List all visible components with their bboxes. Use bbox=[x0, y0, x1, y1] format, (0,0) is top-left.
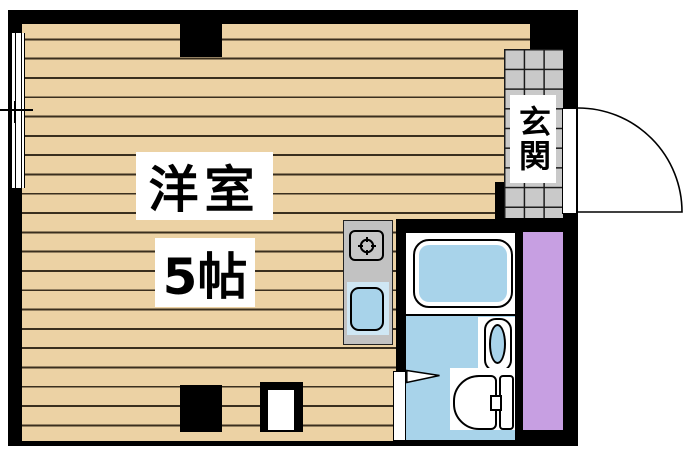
stove-burner-icon bbox=[356, 235, 378, 257]
wall-stub bbox=[495, 182, 504, 229]
pillar-opening bbox=[268, 390, 294, 430]
main-room-label: 洋室 bbox=[136, 152, 273, 220]
bathtub-inner bbox=[419, 245, 507, 302]
bathroom bbox=[406, 233, 515, 316]
wash-basin bbox=[484, 318, 512, 372]
kitchen-sink bbox=[350, 287, 384, 331]
pillar-top bbox=[180, 24, 222, 57]
wash-basin-bowl bbox=[489, 324, 506, 364]
bathroom-door-swing-triangle bbox=[406, 369, 441, 384]
closet-strip bbox=[523, 232, 563, 430]
window-crosshair bbox=[0, 109, 33, 111]
main-room-floor-extension bbox=[504, 24, 530, 49]
toilet-flush-notch bbox=[490, 395, 502, 411]
entrance-door-swing-arc bbox=[577, 107, 685, 215]
entrance-door-leaf bbox=[562, 108, 577, 214]
pillar-bottom bbox=[180, 385, 222, 432]
genkan-label: 玄関 bbox=[510, 95, 556, 183]
wall-outline: 玄関 洋室 5帖 bbox=[8, 10, 578, 446]
kitchen-counter bbox=[343, 220, 393, 345]
pillar-with-opening bbox=[260, 382, 303, 432]
stove bbox=[349, 230, 384, 261]
bathtub bbox=[413, 239, 513, 308]
main-room-size-label: 5帖 bbox=[155, 238, 255, 307]
bathroom-door bbox=[393, 371, 406, 441]
window-crosshair-tick bbox=[14, 101, 16, 123]
floor-plan: 玄関 洋室 5帖 bbox=[0, 0, 694, 453]
